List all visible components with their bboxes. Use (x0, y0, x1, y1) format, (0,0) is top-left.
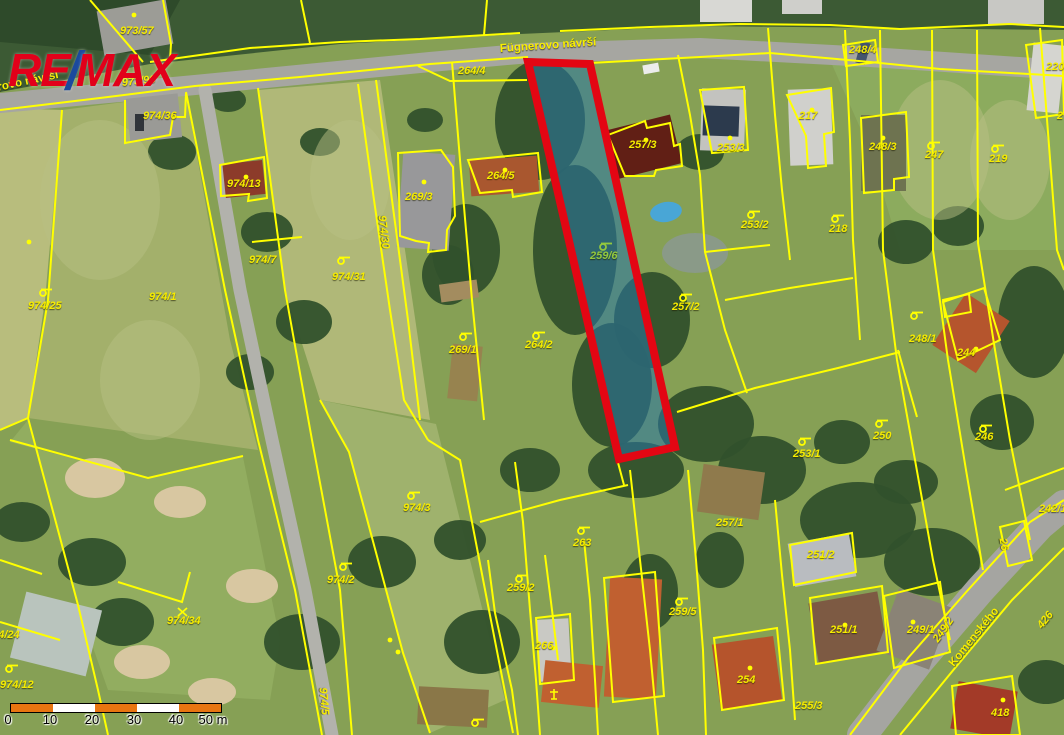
parcel-number-label: 249/2 (931, 616, 956, 645)
street-name-label: Komenského (948, 606, 1002, 669)
logo-re-text: RE (8, 44, 70, 96)
parcel-number-label: 264/5 (487, 171, 515, 182)
scale-tick-label: 20 (85, 712, 99, 727)
parcel-number-label: 251/1 (830, 625, 858, 636)
parcel-number-label: 974/25 (28, 301, 62, 312)
parcel-number-label: 251/2 (807, 550, 835, 561)
parcel-number-label: 244 (957, 348, 975, 359)
remax-logo: RE/MAX (8, 40, 175, 102)
scale-tick-label: 30 (127, 712, 141, 727)
scale-segment (95, 704, 137, 712)
scale-segment (11, 704, 53, 712)
parcel-number-label: 254 (737, 675, 755, 686)
parcel-number-label: 248/3 (869, 142, 897, 153)
parcel-number-label: 217 (799, 111, 817, 122)
scale-tick-label: 0 (4, 712, 11, 727)
scale-segment (137, 704, 179, 712)
parcel-number-label: 257/3 (629, 140, 657, 151)
parcel-number-label: 247 (925, 150, 943, 161)
parcel-number-label: 253/1 (793, 449, 821, 460)
parcel-number-label: 255/3 (795, 701, 823, 712)
parcel-number-label: 248/1 (909, 334, 937, 345)
parcel-number-label: 248/4 (849, 45, 877, 56)
parcel-number-label: 220 (1046, 62, 1064, 73)
parcel-number-label: 974/13 (227, 179, 261, 190)
parcel-number-label: 257/2 (672, 302, 700, 313)
parcel-number-label: 266 (535, 641, 553, 652)
street-name-label: Fügnerovo návrší (500, 37, 597, 55)
parcel-number-label: 974/12 (0, 680, 34, 691)
parcel-number-label: 259/5 (669, 607, 697, 618)
parcel-number-label: 257/1 (716, 518, 744, 529)
parcel-number-label: 250 (873, 431, 891, 442)
parcel-number-label: 974/5 (317, 687, 330, 715)
parcel-number-label: 253/2 (741, 220, 769, 231)
parcel-number-label: 249/1 (907, 625, 935, 636)
parcel-number-label: 26 (997, 538, 1010, 552)
parcel-number-label: 974/1 (149, 292, 177, 303)
parcel-number-label: 974/2 (327, 575, 355, 586)
aerial-map[interactable]: 973/57973/96264/4974/36974/13974/7974/25… (0, 0, 1064, 735)
parcel-number-label: 242/1 (1039, 504, 1064, 515)
parcel-number-label: 269/1 (449, 345, 477, 356)
scale-segment (53, 704, 95, 712)
parcel-number-label: 269/3 (405, 192, 433, 203)
parcel-number-label: 974/30 (376, 215, 391, 250)
parcel-number-label: 259/6 (590, 251, 618, 262)
scale-bar-labels: 01020304050 m (0, 712, 250, 730)
parcel-number-label: 259/2 (507, 583, 535, 594)
parcel-number-label: 974/7 (249, 255, 277, 266)
parcel-number-label: 974/36 (143, 111, 177, 122)
parcel-number-label: 426 (1036, 610, 1056, 631)
parcel-number-label: 263 (573, 538, 591, 549)
scale-bar: 01020304050 m (0, 700, 250, 735)
map-labels-layer: 973/57973/96264/4974/36974/13974/7974/25… (0, 0, 1064, 735)
scale-tick-label: 50 m (199, 712, 228, 727)
parcel-number-label: 218 (829, 224, 847, 235)
parcel-number-label: 974/24 (0, 630, 20, 641)
parcel-number-label: 253/3 (717, 143, 745, 154)
parcel-number-label: 264/4 (458, 66, 486, 77)
scale-segment (179, 704, 221, 712)
parcel-number-label: 264/2 (525, 340, 553, 351)
parcel-number-label: 219 (989, 154, 1007, 165)
parcel-number-label: 418 (991, 708, 1009, 719)
parcel-number-label: 2 (1057, 111, 1063, 122)
parcel-number-label: 246 (975, 432, 993, 443)
scale-tick-label: 10 (43, 712, 57, 727)
parcel-number-label: 974/34 (167, 616, 201, 627)
scale-tick-label: 40 (169, 712, 183, 727)
logo-max-text: MAX (76, 44, 175, 96)
parcel-number-label: 974/3 (403, 503, 431, 514)
parcel-number-label: 974/31 (332, 272, 366, 283)
parcel-number-label: 973/57 (120, 26, 154, 37)
